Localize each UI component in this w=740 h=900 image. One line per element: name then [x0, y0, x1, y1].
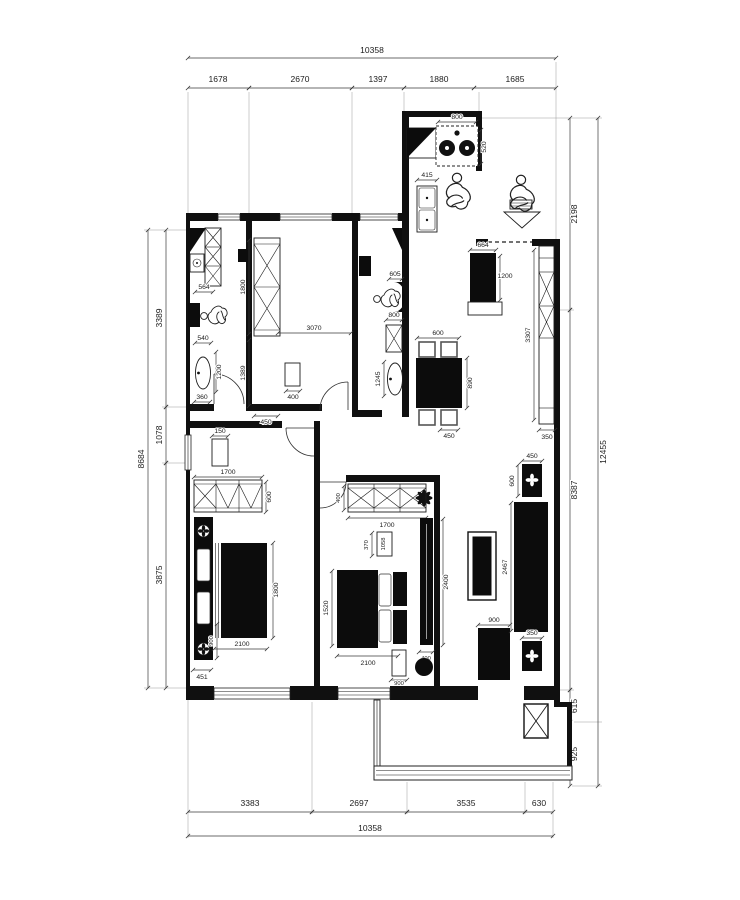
dim-left-1: 3389 — [154, 308, 164, 327]
toilet-1 — [188, 303, 227, 327]
dim-hall-cabinet: 3307 — [525, 327, 532, 342]
dim-tv-cabinet: 900 — [488, 617, 500, 624]
window-top-3 — [360, 214, 398, 220]
dim-left-overall: 8684 — [136, 449, 146, 468]
door-bedroom2 — [320, 482, 346, 508]
dim-sofa: 2467 — [502, 559, 509, 574]
dim-stove: 800 — [451, 114, 463, 121]
dim-bottom-2: 2697 — [350, 798, 369, 808]
dim-dining-width: 600 — [432, 330, 444, 337]
dim-right-2: 8387 — [569, 480, 579, 499]
door-bedroom-mid — [320, 382, 348, 410]
windows — [185, 214, 572, 780]
end-table-1 — [522, 464, 542, 497]
floor-plan-page: 10358 1678 2670 1397 1880 1685 3383 2697… — [0, 0, 740, 900]
dim-end-table2: 350 — [526, 630, 538, 637]
dim-wall-mid: 1389 — [240, 365, 247, 380]
window-top-2 — [280, 214, 332, 220]
wall-tv-icon — [238, 249, 249, 262]
dim-mid-bottom: 450 — [260, 419, 272, 426]
desk: 1058 — [377, 532, 392, 556]
dim-tall-cabinet: 2400 — [443, 574, 450, 589]
dimension-right: 2198 8387 615 925 12455 — [569, 118, 608, 786]
corner-shelf-2 — [392, 228, 402, 250]
dim-stove-depth: 520 — [481, 141, 488, 153]
end-table-2 — [522, 641, 542, 671]
dim-bed2-w: 1520 — [323, 600, 330, 615]
dimension-top: 10358 1678 2670 1397 1880 1685 — [188, 45, 556, 88]
dim-end-table-w: 450 — [526, 453, 538, 460]
dim-bench: 900 — [394, 681, 404, 687]
dim-nightstand1: 900 — [209, 636, 215, 646]
dim-wardrobe1: 1700 — [220, 469, 235, 476]
door-bedroom1 — [286, 428, 314, 456]
wardrobe-1 — [194, 480, 262, 512]
dim-bed1-l: 2100 — [234, 641, 249, 648]
room-bedroom2: 1700 400 1058 370 1520 2100 2400 400 900 — [323, 484, 450, 687]
dim-top-5: 1685 — [506, 74, 525, 84]
window-left-bedroom1 — [185, 435, 191, 470]
wall-basin — [359, 256, 371, 276]
dim-stool: 400 — [287, 394, 299, 401]
window-bottom-2 — [338, 688, 390, 699]
sink-oval-1 — [196, 357, 211, 389]
dim-left-2: 1078 — [154, 425, 164, 444]
chair — [441, 410, 457, 425]
hall-cabinet: 3307 350 — [525, 246, 555, 441]
bed-2 — [337, 570, 407, 648]
dim-right-overall: 12455 — [598, 440, 608, 464]
dim-top-4: 1880 — [430, 74, 449, 84]
room-kitchen: 800 520 415 — [407, 114, 488, 232]
plant — [416, 490, 433, 507]
dim-wardrobe2-d: 400 — [336, 493, 342, 503]
area-entry: 664 1200 — [468, 175, 540, 315]
chair — [441, 342, 457, 357]
washing-machine — [190, 254, 204, 272]
sink-oval-2 — [388, 363, 403, 395]
dim-bath1-sink: 1200 — [216, 364, 223, 379]
doors — [214, 374, 348, 508]
dim-top-overall: 10358 — [360, 45, 384, 55]
dim-top-1: 1678 — [209, 74, 228, 84]
dim-wardrobe1-d: 600 — [266, 491, 273, 503]
dim-wardrobe-mid: 1800 — [240, 279, 247, 294]
dim-right-1: 2198 — [569, 204, 579, 223]
window-bottom-1 — [214, 688, 290, 699]
dim-corner1: 451 — [196, 674, 208, 681]
dim-bottom-3: 3535 — [457, 798, 476, 808]
balcony-column — [524, 704, 548, 738]
dim-desk: 370 — [364, 540, 370, 550]
room-bedroom-mid: 1800 1389 3070 400 450 — [240, 238, 351, 426]
dim-bath1-toilet2: 540 — [197, 335, 209, 342]
chair — [419, 342, 435, 357]
bath2-cabinet — [386, 325, 402, 352]
dining-table — [416, 358, 462, 408]
stool — [285, 363, 300, 386]
corner-cabinet — [407, 128, 436, 158]
dim-sink: 415 — [421, 172, 433, 179]
room-bath2: 605 800 1245 — [359, 228, 405, 396]
tall-cabinet — [420, 518, 433, 645]
bath-cabinet — [205, 228, 221, 286]
dim-top-3: 1397 — [369, 74, 388, 84]
wardrobe-mid — [254, 238, 280, 336]
kitchen-sink — [417, 186, 437, 232]
dim-dining-chair: 450 — [443, 433, 455, 440]
entry-cabinet — [470, 253, 496, 302]
corner-shelf — [190, 228, 206, 252]
person-cooking — [446, 173, 470, 209]
dim-bottom-overall: 10358 — [358, 823, 382, 833]
entry-arrow — [504, 200, 540, 228]
dim-bath1-toilet: 564 — [198, 284, 210, 291]
dim-entry-cabinet-h: 1200 — [497, 273, 512, 280]
bench — [392, 650, 406, 676]
dim-end-table-d: 600 — [509, 475, 516, 487]
stove — [436, 126, 478, 166]
entry-counter — [468, 302, 502, 315]
dim-bed2-l: 2100 — [360, 660, 375, 667]
dim-shelf: 150 — [214, 428, 226, 435]
room-bedroom1: 150 1700 600 1800 2100 900 451 — [193, 428, 280, 681]
dim-bath2-top: 605 — [389, 271, 401, 278]
dim-wardrobe2: 1700 — [379, 522, 394, 529]
bed-1 — [194, 517, 267, 660]
desk-label: 1058 — [381, 538, 387, 551]
coffee-table — [468, 532, 496, 600]
dim-bottom-4: 630 — [532, 798, 546, 808]
window-top-1 — [218, 214, 240, 220]
sofa — [514, 502, 548, 632]
dim-room-width: 3070 — [306, 325, 321, 332]
dim-hall-cabinet-depth: 350 — [541, 434, 553, 441]
dim-dining-length: 890 — [467, 377, 474, 389]
tv-cabinet — [478, 628, 510, 680]
floor-plan-canvas: 10358 1678 2670 1397 1880 1685 3383 2697… — [0, 0, 740, 900]
shelf — [212, 439, 228, 466]
dim-bottom-1: 3383 — [241, 798, 260, 808]
wardrobe-2 — [348, 484, 426, 512]
dim-entry-cabinet-w: 664 — [477, 242, 489, 249]
dimension-bottom: 3383 2697 3535 630 10358 — [188, 798, 553, 836]
dim-top-2: 2670 — [291, 74, 310, 84]
dimension-left: 3389 1078 3875 8684 — [136, 230, 166, 688]
dim-left-3: 3875 — [154, 565, 164, 584]
chair-round — [415, 658, 433, 676]
toilet-2 — [374, 282, 405, 312]
dim-bath2-sink: 1245 — [375, 371, 382, 386]
dim-bath2-toilet: 800 — [388, 312, 400, 319]
dim-bed1-w: 1800 — [273, 582, 280, 597]
chair — [419, 410, 435, 425]
area-dining: 600 890 450 — [416, 330, 474, 440]
dim-bath1-bottom: 360 — [196, 394, 208, 401]
